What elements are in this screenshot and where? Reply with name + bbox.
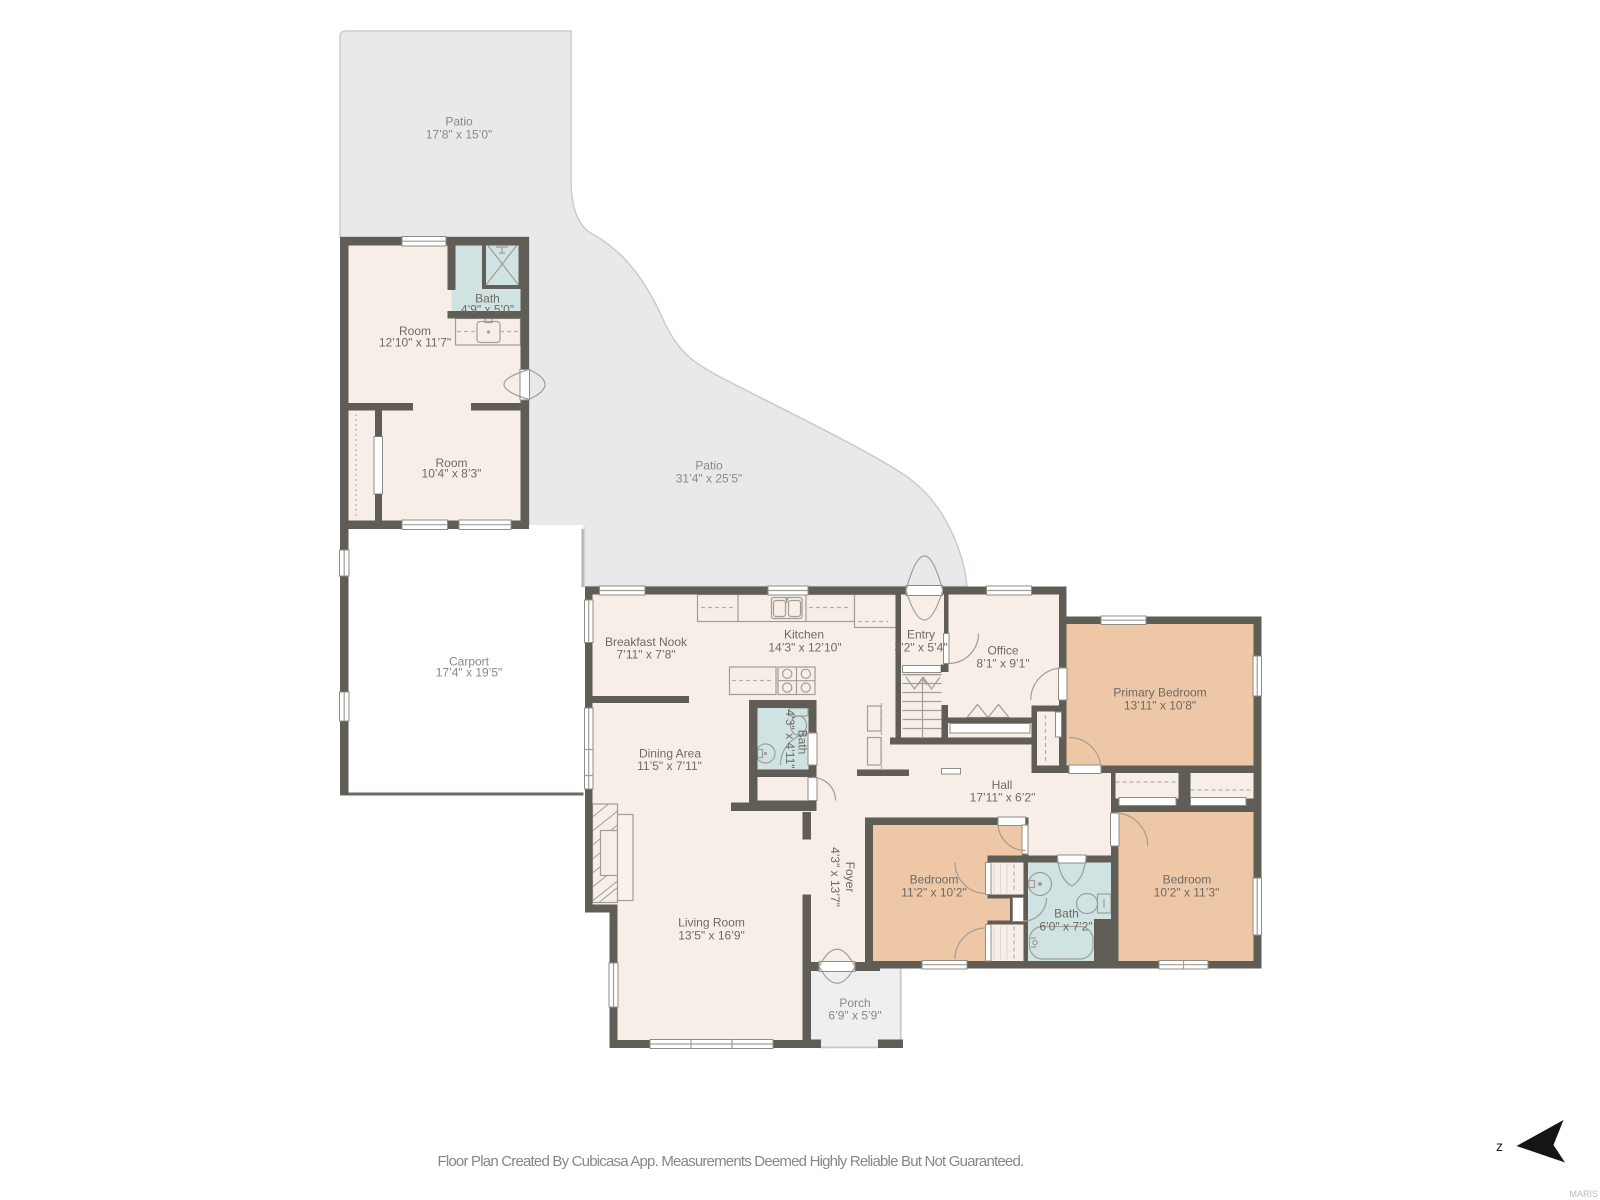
svg-text:17’11" x 6’2": 17’11" x 6’2" xyxy=(970,791,1036,805)
svg-text:17’4" x 19’5": 17’4" x 19’5" xyxy=(436,666,503,680)
svg-text:11’2" x 10’2": 11’2" x 10’2" xyxy=(901,886,967,900)
svg-text:8’1" x 9’1": 8’1" x 9’1" xyxy=(976,657,1029,671)
svg-text:Foyer: Foyer xyxy=(843,862,857,893)
svg-text:10’2" x 11’3": 10’2" x 11’3" xyxy=(1154,886,1220,900)
svg-text:4’3" x 4’11": 4’3" x 4’11" xyxy=(783,710,797,769)
svg-text:14’3" x 12’10": 14’3" x 12’10" xyxy=(768,641,841,655)
svg-text:11’5" x 7’11": 11’5" x 7’11" xyxy=(637,759,702,773)
svg-text:4’3" x 13’7": 4’3" x 13’7" xyxy=(828,847,842,907)
svg-text:Patio: Patio xyxy=(695,459,723,473)
svg-text:z: z xyxy=(1496,1138,1503,1154)
svg-text:Bedroom: Bedroom xyxy=(910,873,959,887)
svg-text:31’4" x 25’5": 31’4" x 25’5" xyxy=(676,472,743,486)
svg-text:Floor Plan Created By Cubicasa: Floor Plan Created By Cubicasa App. Meas… xyxy=(438,1153,1024,1170)
svg-text:3’2" x 5’4": 3’2" x 5’4" xyxy=(894,641,947,655)
svg-text:Bath: Bath xyxy=(1054,907,1079,921)
svg-text:6’9" x 5’9": 6’9" x 5’9" xyxy=(828,1009,881,1023)
svg-text:13’5" x 16’9": 13’5" x 16’9" xyxy=(678,929,745,943)
svg-text:Entry: Entry xyxy=(907,628,935,642)
svg-text:Kitchen: Kitchen xyxy=(784,628,824,642)
svg-text:10’4" x 8’3": 10’4" x 8’3" xyxy=(422,467,482,481)
svg-text:MARIS: MARIS xyxy=(1569,1189,1598,1199)
svg-text:Living Room: Living Room xyxy=(678,916,745,930)
svg-text:Office: Office xyxy=(987,644,1018,658)
svg-text:4’9" x 5’0": 4’9" x 5’0" xyxy=(461,303,514,317)
svg-text:6’0" x 7’2": 6’0" x 7’2" xyxy=(1039,920,1092,934)
svg-text:7’11" x 7’8": 7’11" x 7’8" xyxy=(617,648,676,662)
svg-text:17’8" x 15’0": 17’8" x 15’0" xyxy=(426,128,493,142)
svg-text:Primary Bedroom: Primary Bedroom xyxy=(1113,686,1206,700)
svg-text:Patio: Patio xyxy=(445,115,473,129)
svg-text:12’10" x 11’7": 12’10" x 11’7" xyxy=(379,336,451,350)
svg-text:13’11" x 10’8": 13’11" x 10’8" xyxy=(1124,699,1196,713)
svg-text:Bedroom: Bedroom xyxy=(1163,873,1212,887)
